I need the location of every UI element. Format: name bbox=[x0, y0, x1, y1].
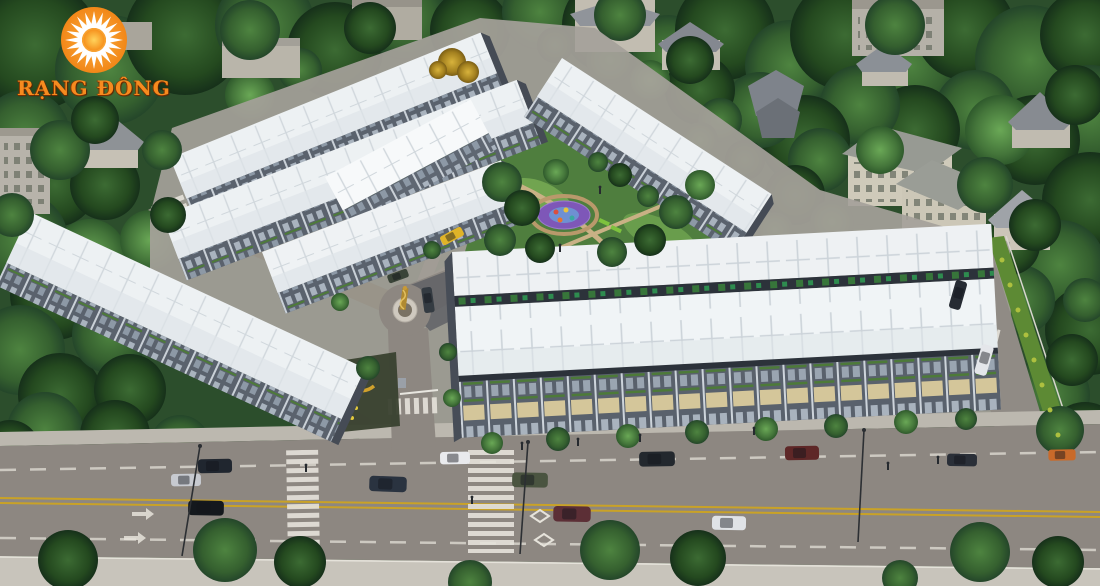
car-black bbox=[188, 500, 224, 515]
autumn-tree bbox=[429, 61, 447, 79]
car-silver bbox=[171, 474, 201, 487]
play-equipment bbox=[558, 218, 563, 223]
brand-name: RẠNG ĐÔNG bbox=[17, 76, 171, 100]
car-dark bbox=[947, 454, 977, 467]
play-equipment bbox=[564, 208, 569, 213]
play-equipment bbox=[570, 216, 575, 221]
car-darkblue bbox=[369, 476, 407, 493]
car-black bbox=[639, 451, 675, 466]
aerial-render: RẠNG ĐÔNG bbox=[0, 0, 1100, 586]
car-white bbox=[712, 516, 746, 531]
car-darkred bbox=[785, 446, 819, 461]
play-equipment bbox=[554, 210, 559, 215]
car-maroon bbox=[553, 506, 591, 522]
car-dark bbox=[198, 459, 232, 474]
car-orange bbox=[1048, 449, 1075, 461]
brand-logo: RẠNG ĐÔNG bbox=[14, 4, 174, 100]
foreground-double-block bbox=[444, 224, 1001, 442]
autumn-tree bbox=[457, 61, 479, 83]
sun-icon bbox=[19, 4, 169, 76]
car-white bbox=[440, 452, 470, 465]
car-green bbox=[512, 472, 548, 487]
guard-booth bbox=[398, 378, 406, 388]
